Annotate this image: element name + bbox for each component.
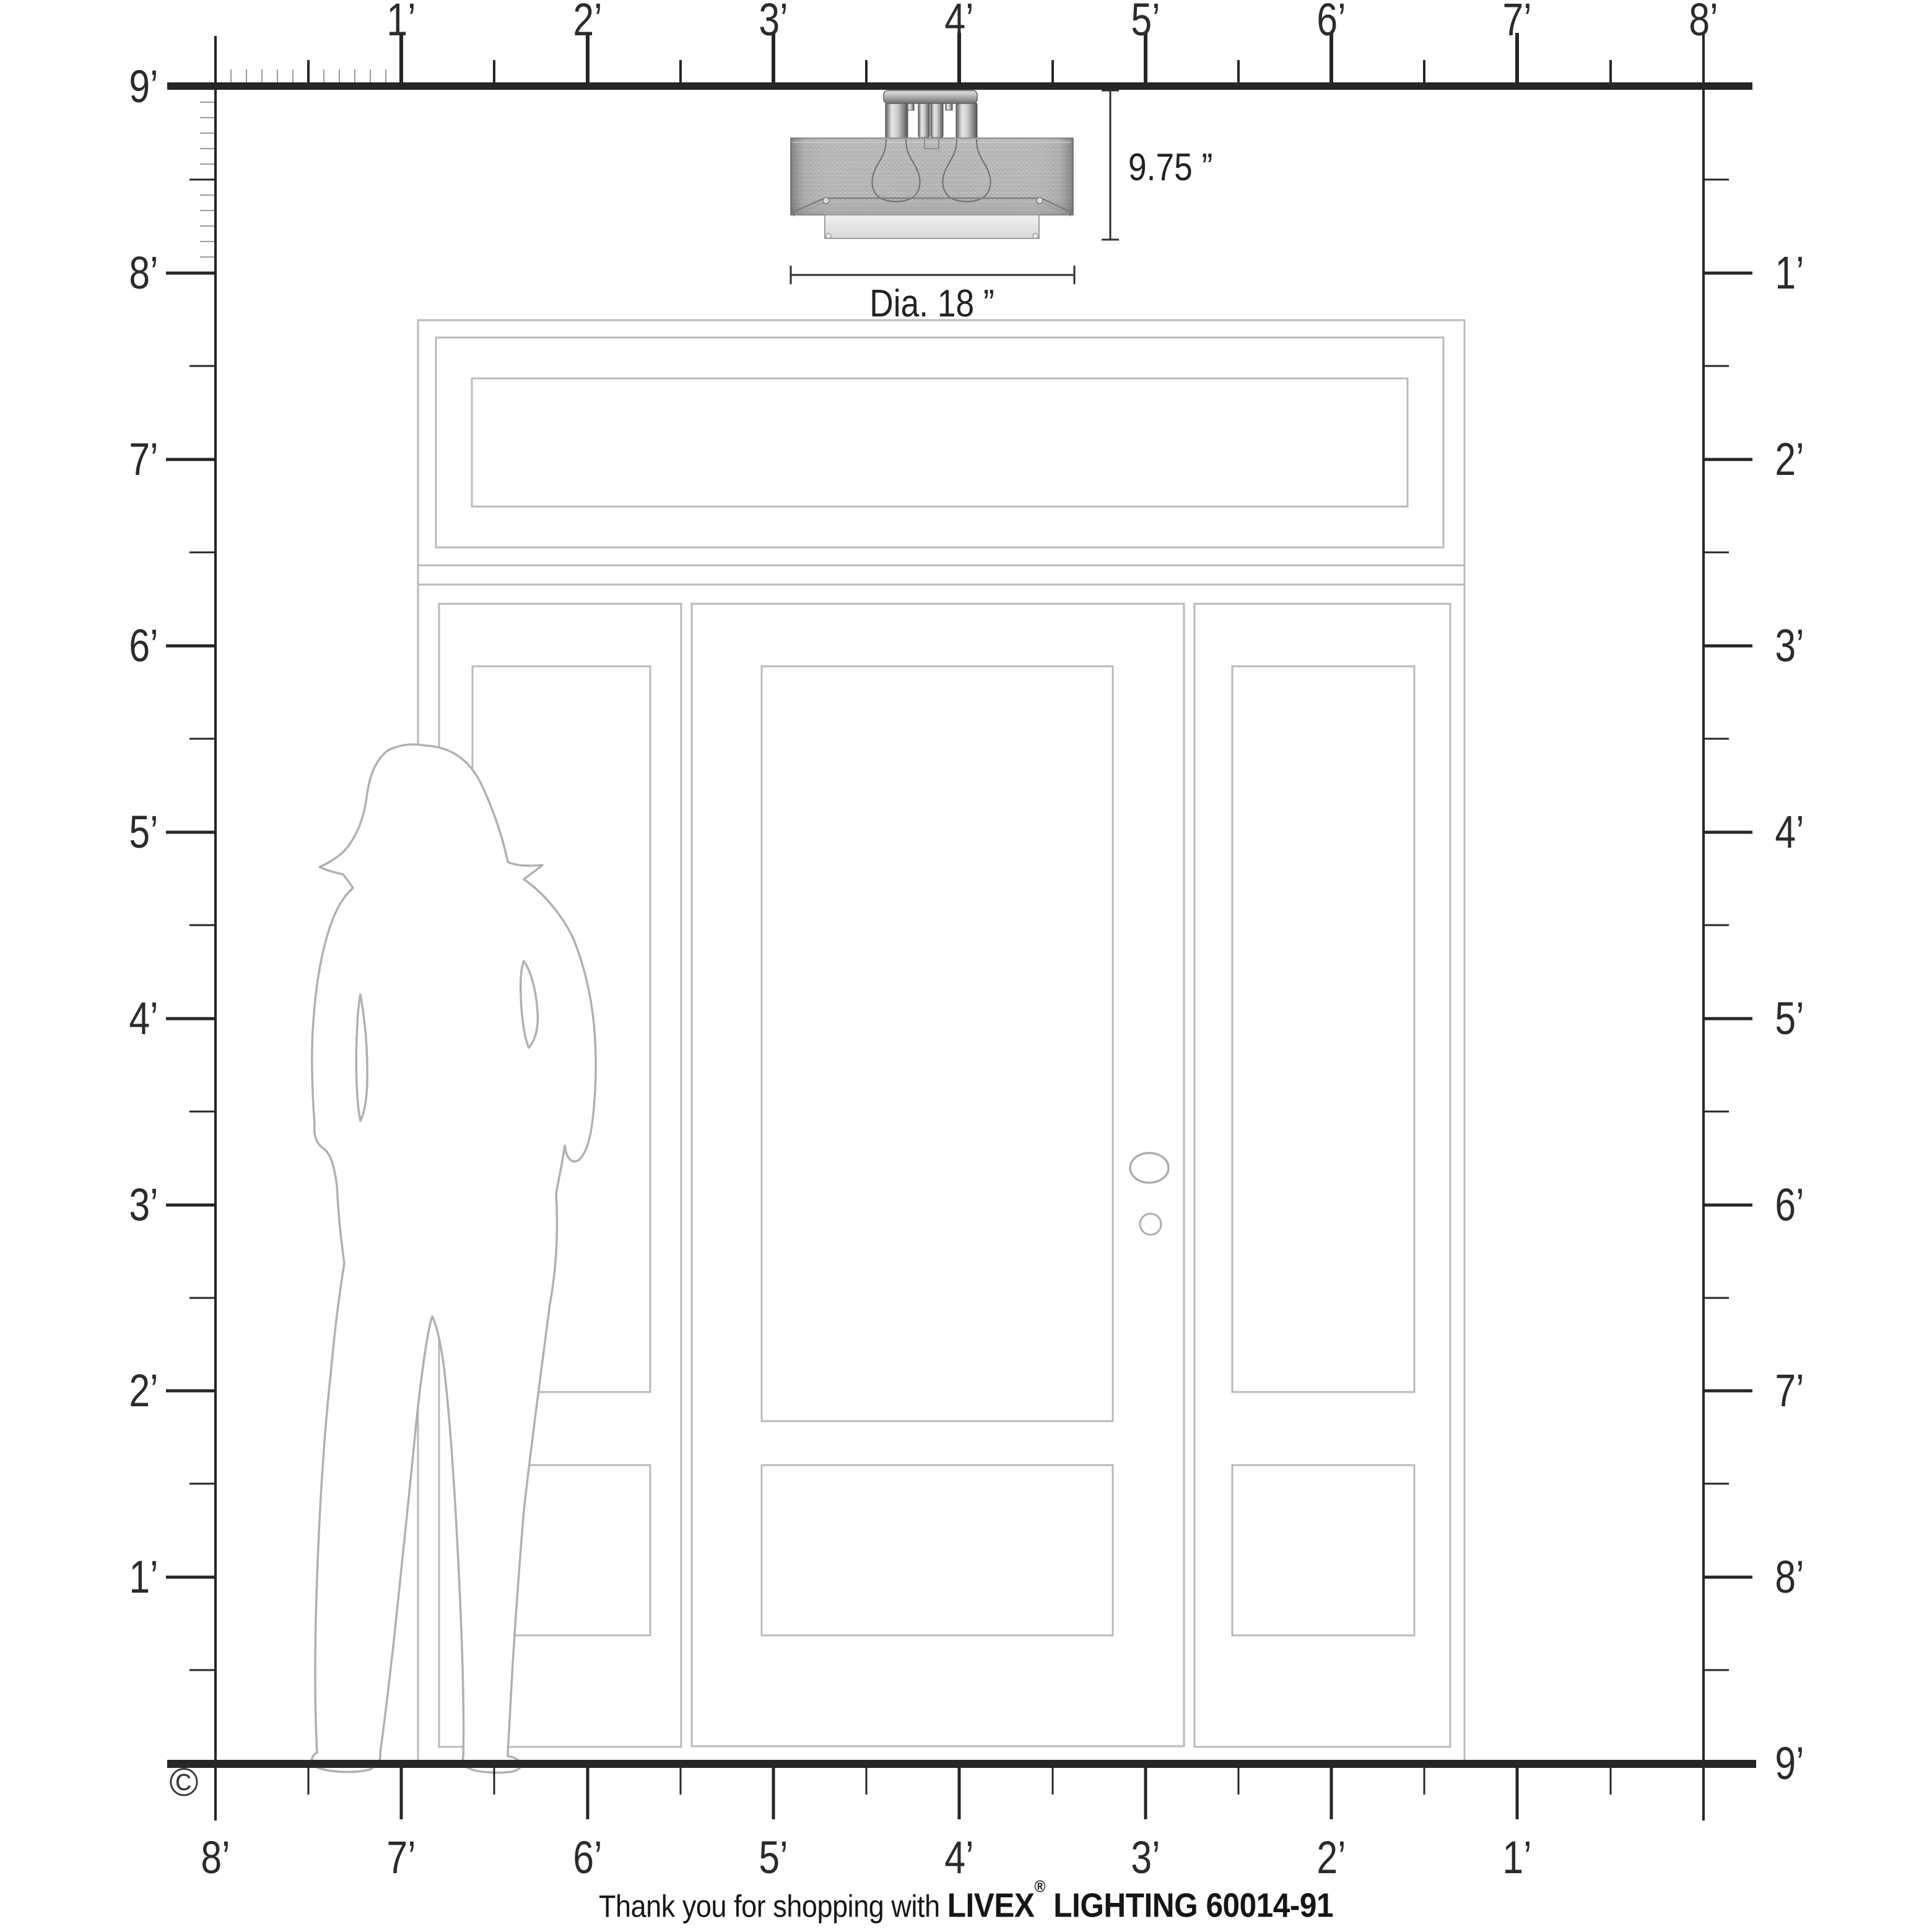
light-fixture xyxy=(791,90,1073,238)
right-ruler-label-9ft: 9’ xyxy=(1775,1741,1804,1786)
woman-silhouette xyxy=(312,744,596,1773)
door-slab xyxy=(692,604,1184,1746)
fixture-canopy xyxy=(884,90,977,103)
rim-rivet-right xyxy=(1037,198,1043,204)
left-ruler-label-1ft: 1’ xyxy=(129,1554,158,1600)
diagram-stage: 1’ 2’ 3’ 4’ 5’ 6’ 7’ 8’ 9’ 8’ 7’ 6’ 5’ 4… xyxy=(0,0,1932,1932)
right-half-ticks xyxy=(1705,180,1729,1670)
right-ruler-label-3ft: 3’ xyxy=(1775,623,1804,669)
right-ruler-label-5ft: 5’ xyxy=(1775,996,1804,1042)
bottom-ruler-label-2ft: 2’ xyxy=(1316,1835,1346,1881)
right-ruler-label-8ft: 8’ xyxy=(1775,1554,1804,1600)
woman-outline xyxy=(312,744,596,1773)
right-ruler-label-1ft: 1’ xyxy=(1775,250,1804,296)
bottom-foot-ticks xyxy=(401,1768,1517,1819)
bottom-ruler-label-6ft: 6’ xyxy=(573,1835,602,1881)
left-ruler-label-4ft: 4’ xyxy=(129,996,158,1042)
right-ruler-label-7ft: 7’ xyxy=(1775,1368,1804,1414)
left-ruler-label-5ft: 5’ xyxy=(129,809,158,855)
left-ruler-label-3ft: 3’ xyxy=(129,1182,158,1228)
top-ruler-label-2ft: 2’ xyxy=(573,0,602,43)
right-ruler-label-6ft: 6’ xyxy=(1775,1182,1804,1228)
left-ruler-label-7ft: 7’ xyxy=(129,437,158,482)
footer-model: LIGHTING 60014-91 xyxy=(1045,1886,1333,1925)
top-ruler-label-5ft: 5’ xyxy=(1131,0,1160,43)
bottom-ruler-label-4ft: 4’ xyxy=(944,1835,973,1881)
fixture-sockets xyxy=(885,102,977,139)
height-dimension-line xyxy=(1102,90,1119,240)
right-ruler-label-2ft: 2’ xyxy=(1775,437,1804,482)
transom-frame xyxy=(436,337,1443,547)
copyright-symbol: © xyxy=(169,1762,198,1802)
bottom-ruler-bar xyxy=(167,1760,1756,1768)
top-ruler-bar xyxy=(167,82,1752,90)
diffuser-rivet-left xyxy=(826,233,831,238)
door-knob xyxy=(1130,1153,1168,1183)
fixture-diameter-label: Dia. 18 ” xyxy=(869,285,994,323)
fixture-diffuser xyxy=(825,215,1039,238)
shade-bottom-shading xyxy=(791,138,1073,215)
top-ruler-label-1ft: 1’ xyxy=(386,0,416,43)
left-ruler-label-2ft: 2’ xyxy=(129,1368,158,1414)
top-ruler-label-6ft: 6’ xyxy=(1316,0,1346,43)
registered-trademark-icon: ® xyxy=(1034,1878,1045,1896)
left-ruler-label-6ft: 6’ xyxy=(129,623,158,669)
footer-prefix: Thank you for shopping with xyxy=(599,1889,947,1924)
right-sidelight-upper-panel xyxy=(1232,666,1414,1392)
diameter-dimension-line xyxy=(791,266,1074,284)
top-ruler-label-7ft: 7’ xyxy=(1502,0,1531,43)
top-ruler-label-3ft: 3’ xyxy=(759,0,788,43)
door-lower-panel xyxy=(762,1465,1113,1635)
door-deadbolt xyxy=(1140,1214,1161,1235)
transom-glass xyxy=(472,378,1408,507)
bottom-ruler-label-5ft: 5’ xyxy=(759,1835,788,1881)
bottom-ruler-label-8ft: 8’ xyxy=(201,1835,230,1881)
right-sidelight-lower-panel xyxy=(1232,1465,1414,1635)
left-half-ticks xyxy=(189,180,214,1670)
diffuser-rivet-right xyxy=(1033,233,1038,238)
transom-sill-lines xyxy=(418,565,1464,585)
footer-brand: LIVEX xyxy=(947,1886,1035,1925)
footer-text: Thank you for shopping with LIVEX® LIGHT… xyxy=(599,1889,1333,1923)
right-ruler-label-4ft: 4’ xyxy=(1775,809,1804,855)
fixture-height-label: 9.75 ” xyxy=(1128,149,1212,187)
left-ruler-label-9ft: 9’ xyxy=(129,64,158,110)
door-upper-panel xyxy=(762,666,1113,1421)
top-ruler-label-4ft: 4’ xyxy=(944,0,973,43)
bottom-ruler-label-7ft: 7’ xyxy=(386,1835,416,1881)
bottom-ruler-label-1ft: 1’ xyxy=(1502,1835,1531,1881)
left-ruler-label-8ft: 8’ xyxy=(129,250,158,296)
bottom-ruler-label-3ft: 3’ xyxy=(1131,1835,1160,1881)
top-ruler-label-8ft: 8’ xyxy=(1689,0,1718,43)
rim-rivet-left xyxy=(823,198,829,204)
